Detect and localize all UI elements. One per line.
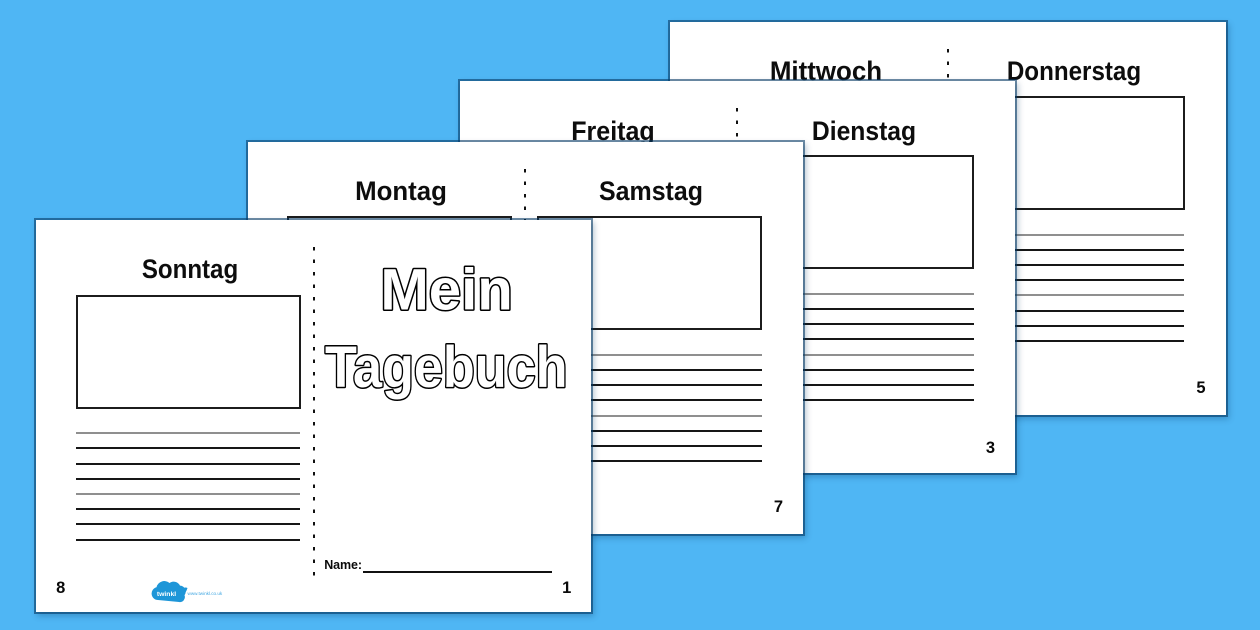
svg-text:www.twinkl.co.uk: www.twinkl.co.uk [188, 591, 223, 596]
svg-text:Mein: Mein [381, 258, 514, 323]
svg-text:Tagebuch: Tagebuch [325, 335, 568, 400]
svg-text:twinkl: twinkl [157, 591, 176, 598]
